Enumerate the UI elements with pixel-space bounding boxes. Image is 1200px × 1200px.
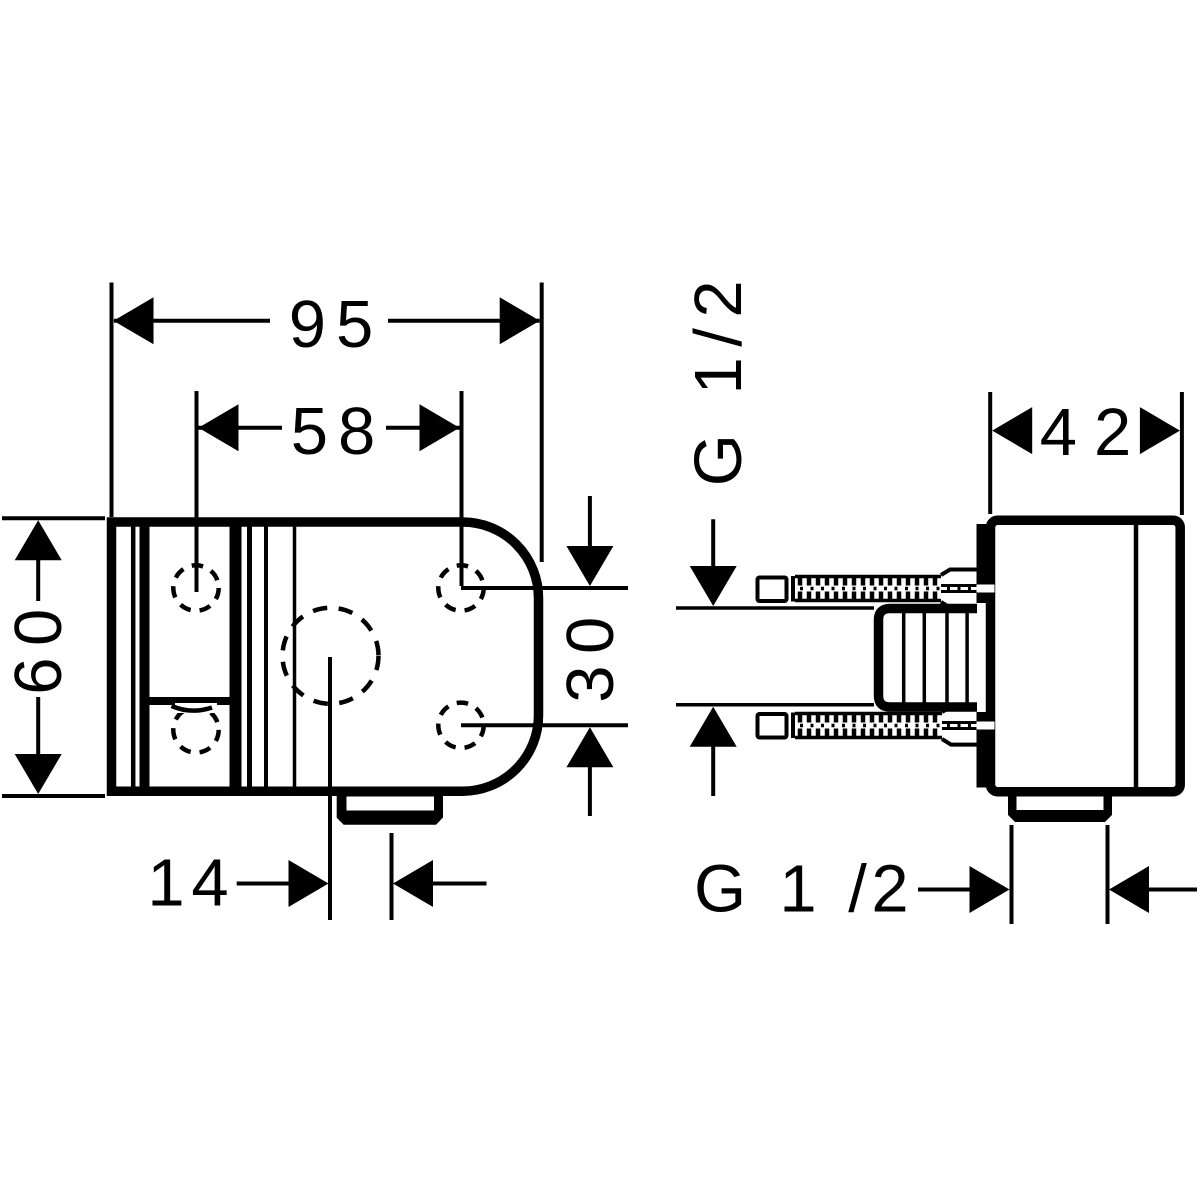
svg-text:95: 95 (289, 287, 384, 362)
svg-text:/: / (848, 852, 867, 927)
svg-text:G 1/2: G 1/2 (681, 270, 756, 486)
svg-text:42: 42 (1040, 395, 1149, 470)
svg-text:2: 2 (871, 852, 908, 927)
svg-text:1: 1 (779, 852, 816, 927)
svg-text:58: 58 (291, 394, 386, 469)
svg-text:G: G (694, 852, 746, 927)
svg-text:4: 4 (191, 846, 228, 921)
svg-text:30: 30 (553, 605, 628, 703)
svg-text:60: 60 (1, 597, 76, 695)
svg-text:1: 1 (147, 846, 184, 921)
